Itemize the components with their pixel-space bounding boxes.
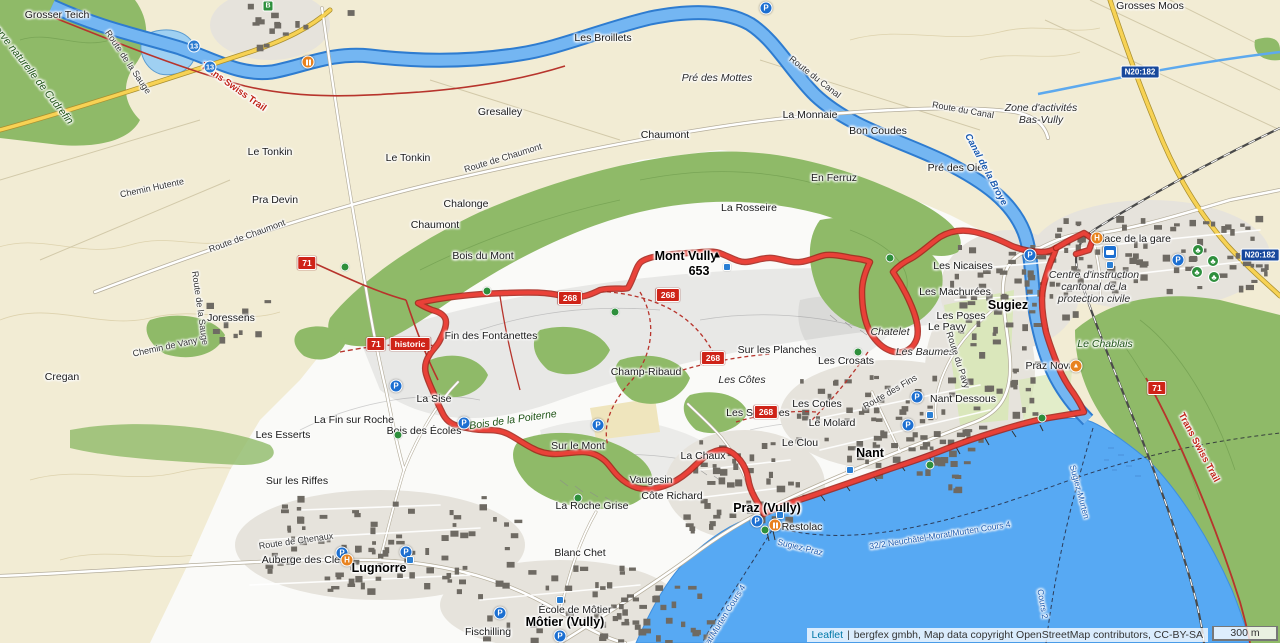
- map-canvas[interactable]: SugiezNantPraz (Vully)Môtier (Vully)Lugn…: [0, 0, 1280, 643]
- restaurant-marker[interactable]: [769, 519, 782, 532]
- parking-marker[interactable]: P: [554, 630, 567, 643]
- stop-marker[interactable]: [341, 263, 350, 272]
- hotel-marker[interactable]: H: [1091, 232, 1104, 245]
- stop-marker[interactable]: [574, 494, 583, 503]
- info-marker[interactable]: [1106, 261, 1114, 269]
- stop-marker[interactable]: [854, 348, 863, 357]
- stop-marker[interactable]: [1038, 414, 1047, 423]
- stop-marker[interactable]: [394, 431, 403, 440]
- tree-marker[interactable]: ♣: [1191, 266, 1203, 278]
- stop-marker[interactable]: [886, 254, 895, 263]
- tree-marker[interactable]: ♣: [1208, 271, 1220, 283]
- parking-marker[interactable]: P: [760, 2, 773, 15]
- tree-marker[interactable]: ♣: [1192, 244, 1204, 256]
- camp-marker[interactable]: ▲: [1070, 360, 1083, 373]
- scale-control: 300 m: [1212, 626, 1278, 641]
- parking-marker[interactable]: P: [902, 419, 915, 432]
- parking-marker[interactable]: P: [1172, 254, 1185, 267]
- hotel-marker[interactable]: H: [341, 554, 354, 567]
- info-marker[interactable]: [556, 596, 564, 604]
- leaflet-link[interactable]: Leaflet: [812, 629, 844, 641]
- attribution-text: bergfex gmbh, Map data copyright OpenStr…: [854, 629, 1203, 641]
- stop-marker[interactable]: [611, 308, 620, 317]
- info-marker[interactable]: [406, 556, 414, 564]
- info-marker[interactable]: [846, 466, 854, 474]
- tree-marker[interactable]: ♣: [1207, 255, 1219, 267]
- parking-marker[interactable]: P: [458, 417, 471, 430]
- info-marker[interactable]: [776, 511, 784, 519]
- info-marker[interactable]: [723, 263, 731, 271]
- summit-marker: ▲: [712, 250, 722, 261]
- parking-marker[interactable]: P: [1024, 249, 1037, 262]
- attribution-bar: Leaflet|bergfex gmbh, Map data copyright…: [807, 628, 1208, 642]
- station-marker[interactable]: [1103, 245, 1117, 259]
- stop-marker[interactable]: [483, 287, 492, 296]
- parking-marker[interactable]: P: [592, 419, 605, 432]
- parking-marker[interactable]: P: [911, 391, 924, 404]
- map-base-layer: [0, 0, 1280, 643]
- transit-marker[interactable]: B: [263, 1, 274, 12]
- stop-marker[interactable]: [926, 461, 935, 470]
- parking-marker[interactable]: P: [390, 380, 403, 393]
- parking-marker[interactable]: P: [494, 607, 507, 620]
- restaurant-marker[interactable]: [302, 56, 315, 69]
- attribution-separator: |: [847, 629, 850, 641]
- scale-label: 300 m: [1214, 627, 1276, 639]
- info-marker[interactable]: [926, 411, 934, 419]
